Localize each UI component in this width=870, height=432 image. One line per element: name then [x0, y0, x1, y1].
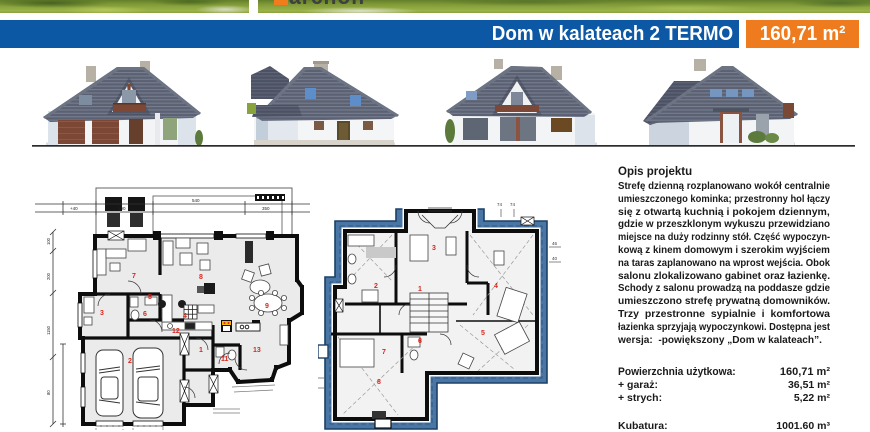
- svg-text:9: 9: [265, 303, 269, 310]
- svg-text:8: 8: [377, 379, 381, 386]
- svg-text:+40: +40: [70, 206, 78, 211]
- svg-text:540: 540: [192, 198, 200, 203]
- svg-text:1150: 1150: [46, 325, 51, 335]
- svg-text:100: 100: [46, 237, 51, 245]
- svg-text:2: 2: [128, 358, 132, 365]
- svg-text:12: 12: [172, 328, 180, 335]
- svg-text:3: 3: [100, 310, 104, 317]
- svg-text:74: 74: [497, 202, 503, 207]
- svg-text:6: 6: [418, 338, 422, 345]
- svg-text:7: 7: [132, 273, 136, 280]
- svg-text:200: 200: [46, 272, 51, 280]
- svg-text:350: 350: [262, 206, 270, 211]
- svg-text:46: 46: [552, 241, 558, 246]
- svg-text:2: 2: [374, 283, 378, 290]
- svg-text:5: 5: [481, 330, 485, 337]
- svg-text:190: 190: [118, 206, 126, 211]
- svg-text:1: 1: [418, 286, 422, 293]
- svg-text:11: 11: [221, 356, 229, 363]
- svg-text:13: 13: [253, 347, 261, 354]
- svg-text:7: 7: [382, 349, 386, 356]
- svg-text:8: 8: [199, 274, 203, 281]
- svg-text:4: 4: [183, 313, 187, 320]
- svg-text:40: 40: [552, 256, 558, 261]
- svg-text:80: 80: [46, 390, 51, 395]
- svg-text:3: 3: [432, 245, 436, 252]
- svg-text:1: 1: [199, 347, 203, 354]
- svg-text:4: 4: [494, 283, 498, 290]
- svg-text:74: 74: [510, 202, 516, 207]
- svg-text:5: 5: [148, 294, 152, 301]
- svg-text:6: 6: [143, 311, 147, 318]
